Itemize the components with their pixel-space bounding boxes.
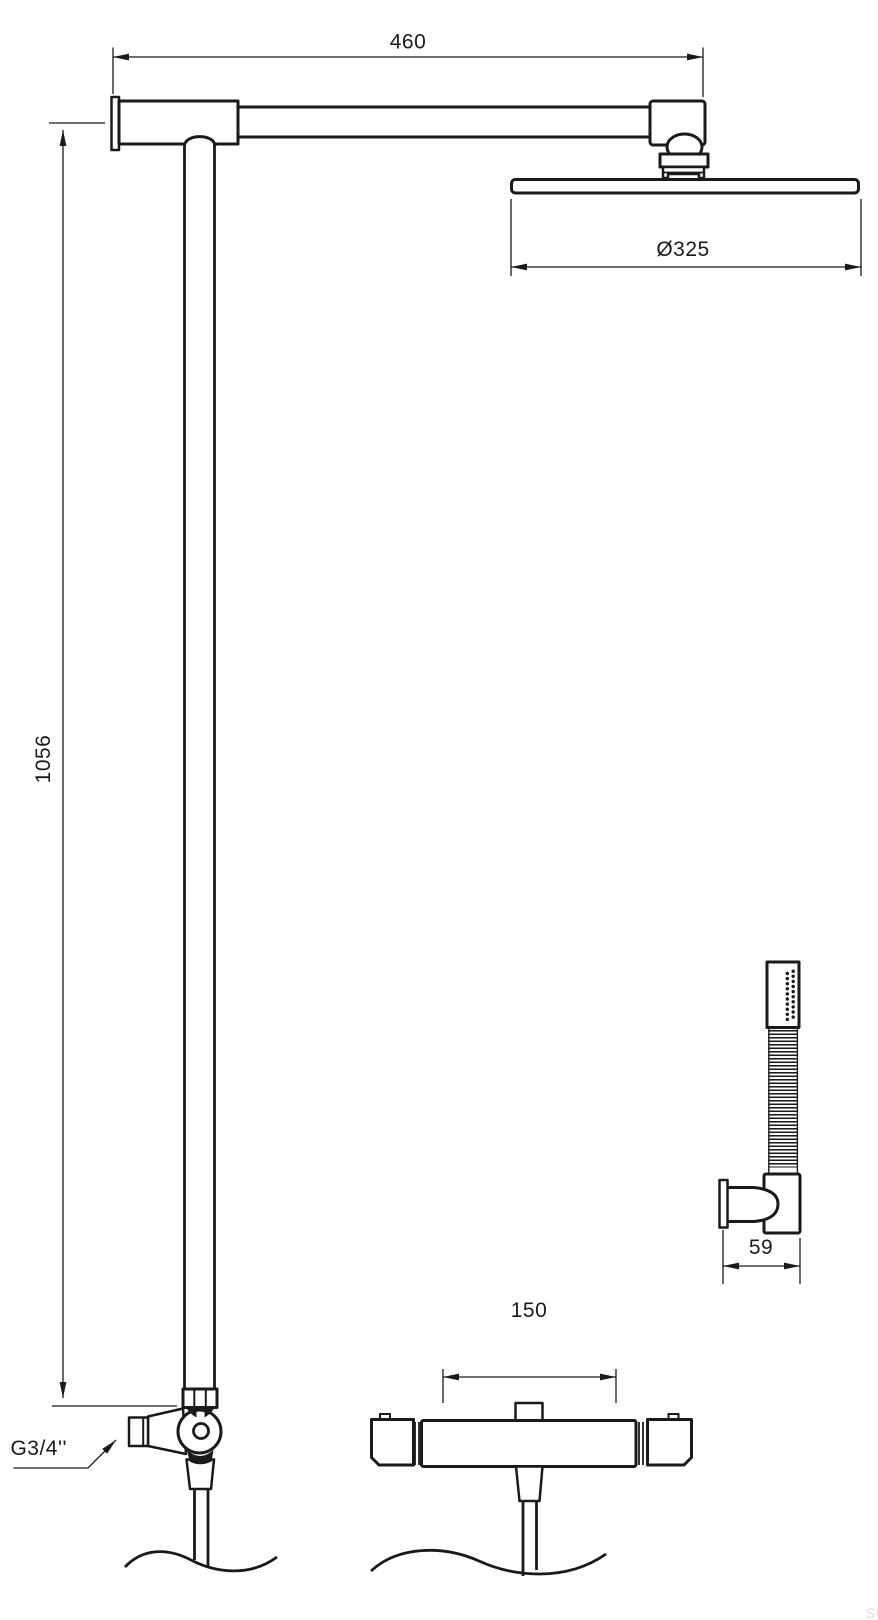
inlet-thread-callout: G3/4'' <box>10 1437 116 1468</box>
valve-hex-nut <box>183 1389 217 1408</box>
dimension-column-height: 1056 <box>32 123 177 1406</box>
drawing-sheet: 460 Ø325 1056 59 150 G3/4'' SU <box>0 0 878 1620</box>
hand-shower-holder-arm <box>727 1188 778 1222</box>
diverter-valve <box>125 1389 277 1571</box>
dimension-holder-depth: 59 <box>723 1230 800 1284</box>
mixer-right-handle <box>648 1420 692 1466</box>
shower-column-pipe <box>185 144 215 1390</box>
dim-mixer-spacing-text: 150 <box>511 1299 548 1322</box>
dimension-mixer-spacing: 150 <box>443 1299 616 1403</box>
rain-shower-head <box>512 134 859 193</box>
dimension-arm-length: 460 <box>113 31 703 98</box>
dim-column-height-text: 1056 <box>32 735 55 784</box>
arm-wall-block <box>119 101 238 144</box>
mixer-left-handle <box>372 1420 414 1466</box>
technical-drawing: 460 Ø325 1056 59 150 G3/4'' SU <box>0 0 878 1620</box>
mixer-hose-taper <box>516 1467 543 1502</box>
watermark-text: SU <box>866 1606 878 1620</box>
hose-break-wave <box>125 1552 277 1571</box>
inlet-thread-label: G3/4'' <box>10 1437 67 1460</box>
mixer-top-outlet <box>516 1403 543 1421</box>
water-inlet-port <box>129 1418 148 1447</box>
dim-arm-length-text: 460 <box>390 31 427 54</box>
hand-shower <box>720 962 801 1233</box>
mixer-hose-break-wave <box>371 1550 606 1574</box>
dimension-head-diameter: Ø325 <box>511 199 861 276</box>
thermostatic-mixer <box>371 1403 692 1576</box>
arm-pipe-junction-dome <box>185 137 216 146</box>
dim-head-diameter-text: Ø325 <box>656 238 709 261</box>
shower-head-plate <box>512 180 859 194</box>
holder-wall-flange <box>720 1180 728 1228</box>
valve-knob <box>178 1410 221 1453</box>
dim-holder-depth-text: 59 <box>749 1236 773 1259</box>
hand-shower-ribbed-grip <box>769 1029 798 1168</box>
shower-arm <box>112 97 706 150</box>
mixer-body <box>422 1421 637 1467</box>
head-connector-nut <box>660 154 708 167</box>
